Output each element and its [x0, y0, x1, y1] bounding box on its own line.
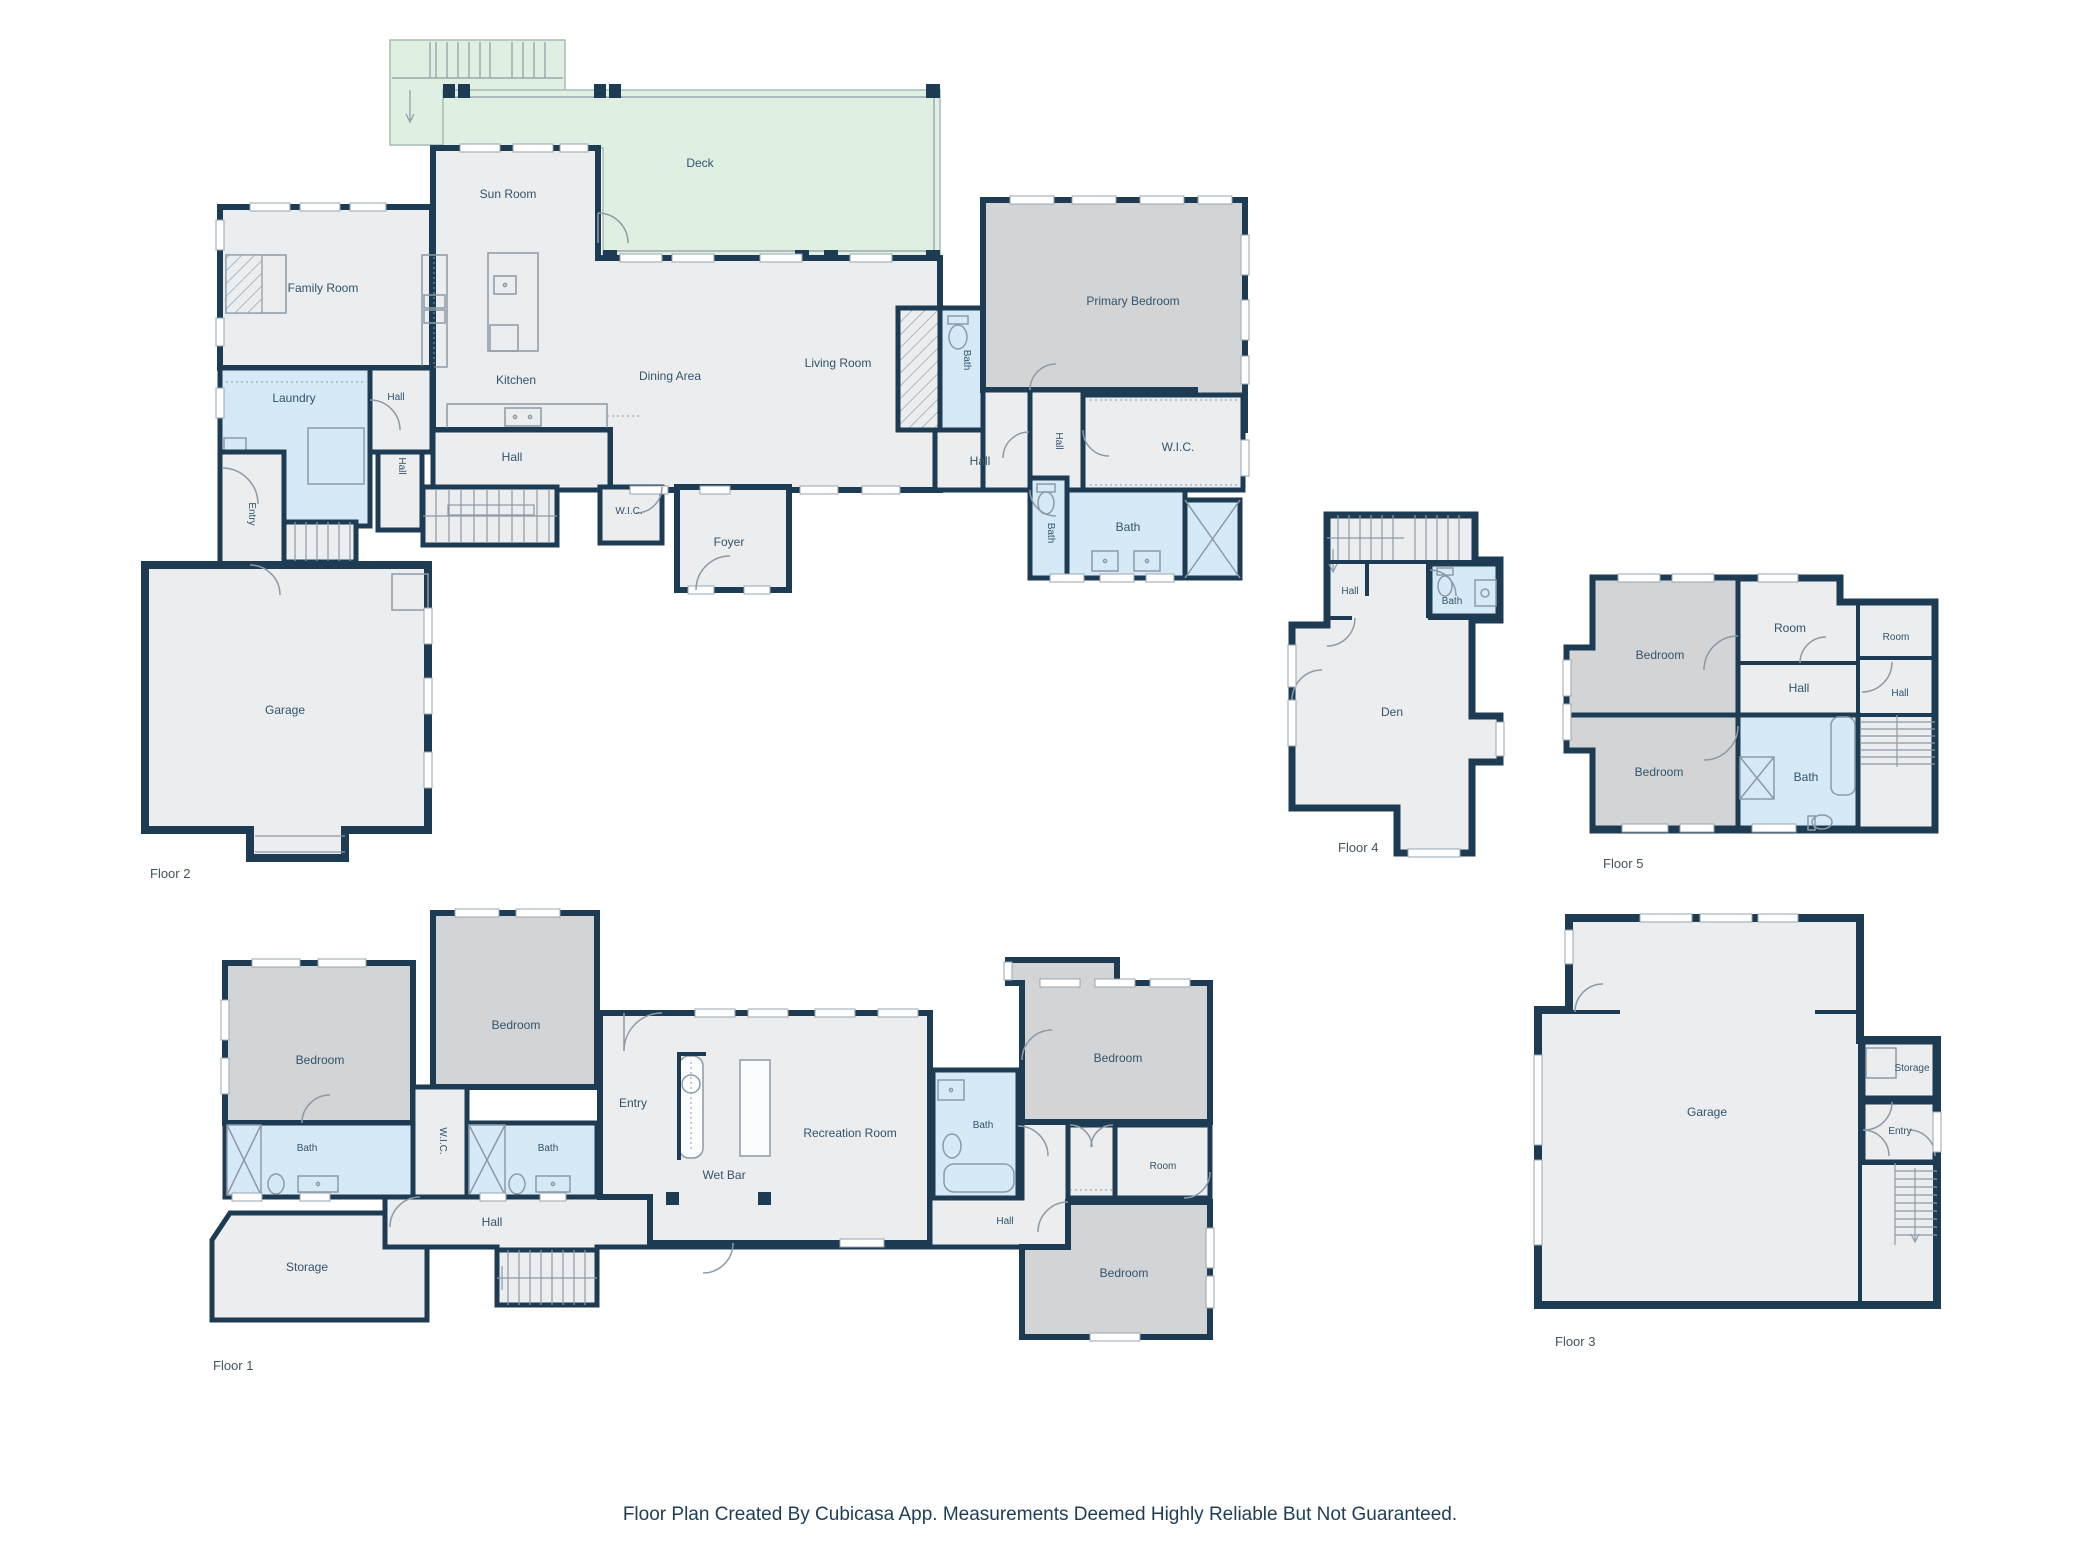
floor1-label-bedroom-c: Bedroom: [1094, 1051, 1143, 1065]
floor3-label-garage: Garage: [1687, 1105, 1727, 1119]
floor1-label-storage: Storage: [286, 1260, 328, 1274]
disclaimer-text: Floor Plan Created By Cubicasa App. Meas…: [623, 1504, 1457, 1525]
floorplan-floor-1: Bedroom Bedroom Bedroom Bedroom Bath Bat…: [212, 909, 1214, 1373]
floorplan-page: Deck Sun Room Family Room Kitchen Dining…: [0, 0, 2080, 1560]
floor2-label-dining-area: Dining Area: [639, 369, 701, 383]
floor2-label-primary-bedroom: Primary Bedroom: [1086, 294, 1179, 308]
floorplan-floor-5: Bedroom Bedroom Room Room Hall Hall Bath…: [1563, 574, 1935, 871]
floor2-label-sun-room: Sun Room: [480, 187, 537, 201]
floor1-room-bedroom-a: [225, 963, 413, 1123]
floor1-room-bedroom-b: [433, 913, 597, 1087]
floor5-label-bath: Bath: [1794, 770, 1819, 784]
floor4-label-hall: Hall: [1341, 586, 1358, 597]
floor2-closet-hatched: [898, 308, 940, 430]
floor2-label-bath-a: Bath: [961, 350, 972, 371]
floor2-label-deck: Deck: [686, 156, 714, 170]
floor3-name: Floor 3: [1555, 1334, 1595, 1349]
floor5-label-bedroom-a: Bedroom: [1636, 648, 1685, 662]
floor1-label-bedroom-b: Bedroom: [492, 1018, 541, 1032]
floor1-label-bath-a: Bath: [297, 1143, 318, 1154]
floor1-label-hall-a: Hall: [482, 1215, 503, 1229]
floor3-label-storage: Storage: [1894, 1063, 1929, 1074]
floor2-label-hall-c: Hall: [502, 450, 523, 464]
floor2-name: Floor 2: [150, 866, 190, 881]
floor1-label-bedroom-a: Bedroom: [296, 1053, 345, 1067]
floor2-shower: [1185, 500, 1240, 578]
floor2-label-hall-d: Hall: [970, 454, 991, 468]
floor2-label-hall-e: Hall: [1053, 432, 1064, 449]
floor3-label-entry: Entry: [1888, 1126, 1911, 1137]
floor2-label-wic-b: W.I.C.: [1162, 440, 1195, 454]
floor5-label-hall-b: Hall: [1891, 688, 1908, 699]
floor1-label-wet-bar: Wet Bar: [702, 1168, 745, 1182]
floor2-label-bath-b: Bath: [1116, 520, 1141, 534]
floor5-label-room-b: Room: [1883, 632, 1910, 643]
floor1-label-entry: Entry: [619, 1096, 647, 1110]
floor5-room-bedroom-a: [1567, 578, 1738, 715]
floor2-suite-vestibule: [983, 390, 1030, 490]
floor2-label-garage: Garage: [265, 703, 305, 717]
floor1-label-wic: W.I.C.: [437, 1127, 448, 1154]
floor1-label-bedroom-d: Bedroom: [1100, 1266, 1149, 1280]
floor4-name: Floor 4: [1338, 840, 1378, 855]
floor5-label-bedroom-b: Bedroom: [1635, 765, 1684, 779]
floor1-closet: [1068, 1125, 1115, 1198]
floor1-label-hall-b: Hall: [996, 1216, 1013, 1227]
floor1-stairs: [497, 1250, 597, 1305]
floorplan-floor-4: Hall Bath Den Floor 4: [1288, 515, 1504, 857]
floor2-label-laundry: Laundry: [272, 391, 315, 405]
floor2-label-hall-a: Hall: [387, 392, 404, 403]
floor1-label-bath-c: Bath: [973, 1120, 994, 1131]
floor1-label-recreation: Recreation Room: [803, 1126, 896, 1140]
floor2-label-living-room: Living Room: [805, 356, 872, 370]
floor4-label-den: Den: [1381, 705, 1403, 719]
floorplan-floor-3: Garage Storage Entry Floor 3: [1534, 914, 1941, 1349]
floor2-room-bath-b: [1067, 490, 1185, 578]
floor2-stairs-garage: [284, 522, 356, 562]
floor1-label-bath-b: Bath: [538, 1143, 559, 1154]
floor5-name: Floor 5: [1603, 856, 1643, 871]
floor2-label-bath-c: Bath: [1045, 523, 1056, 544]
floorplan-svg: Deck Sun Room Family Room Kitchen Dining…: [0, 0, 2080, 1560]
floor2-label-entry: Entry: [246, 502, 257, 525]
floor2-stairs-main: [423, 487, 557, 545]
floor1-label-room: Room: [1150, 1161, 1177, 1172]
floor1-name: Floor 1: [213, 1358, 253, 1373]
floor5-label-room-a: Room: [1774, 621, 1806, 635]
floor2-label-wic-a: W.I.C.: [615, 506, 642, 517]
floor2-label-foyer: Foyer: [714, 535, 745, 549]
floor2-label-kitchen: Kitchen: [496, 373, 536, 387]
floorplan-floor-2: Deck Sun Room Family Room Kitchen Dining…: [145, 40, 1249, 881]
floor4-label-bath: Bath: [1442, 596, 1463, 607]
floor2-room-hall-a: [370, 368, 432, 452]
floor5-label-hall-a: Hall: [1789, 681, 1810, 695]
floor2-label-hall-b: Hall: [396, 457, 407, 474]
floor1-room-bath-c: [933, 1070, 1018, 1198]
floor2-label-family-room: Family Room: [288, 281, 359, 295]
